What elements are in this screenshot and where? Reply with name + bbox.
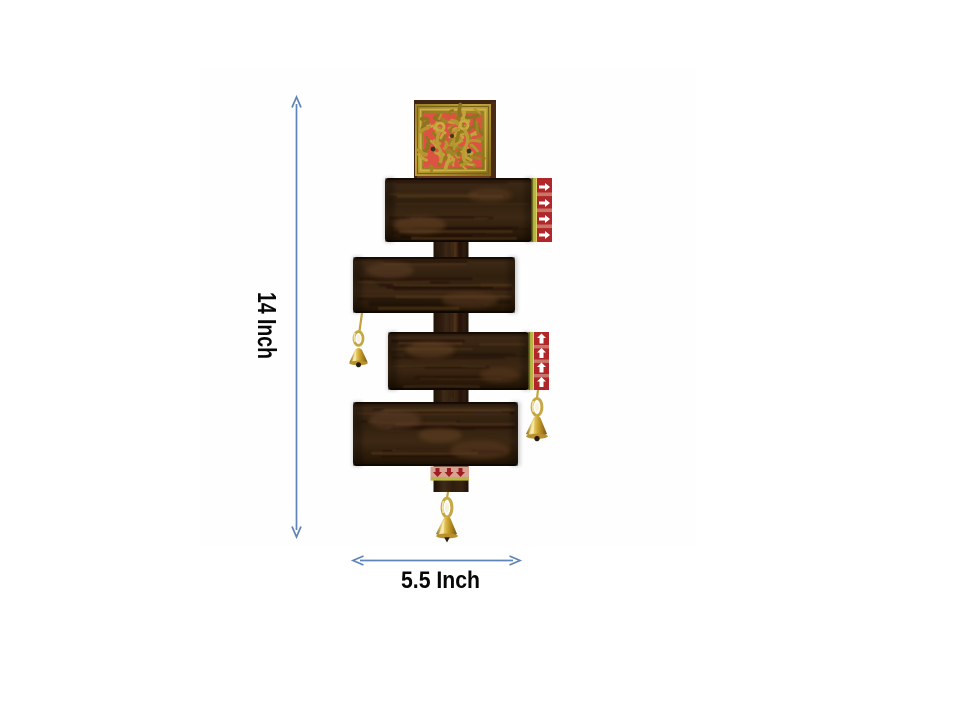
svg-text:5.5 Inch: 5.5 Inch <box>401 567 480 594</box>
svg-text:14 Inch: 14 Inch <box>252 292 282 359</box>
